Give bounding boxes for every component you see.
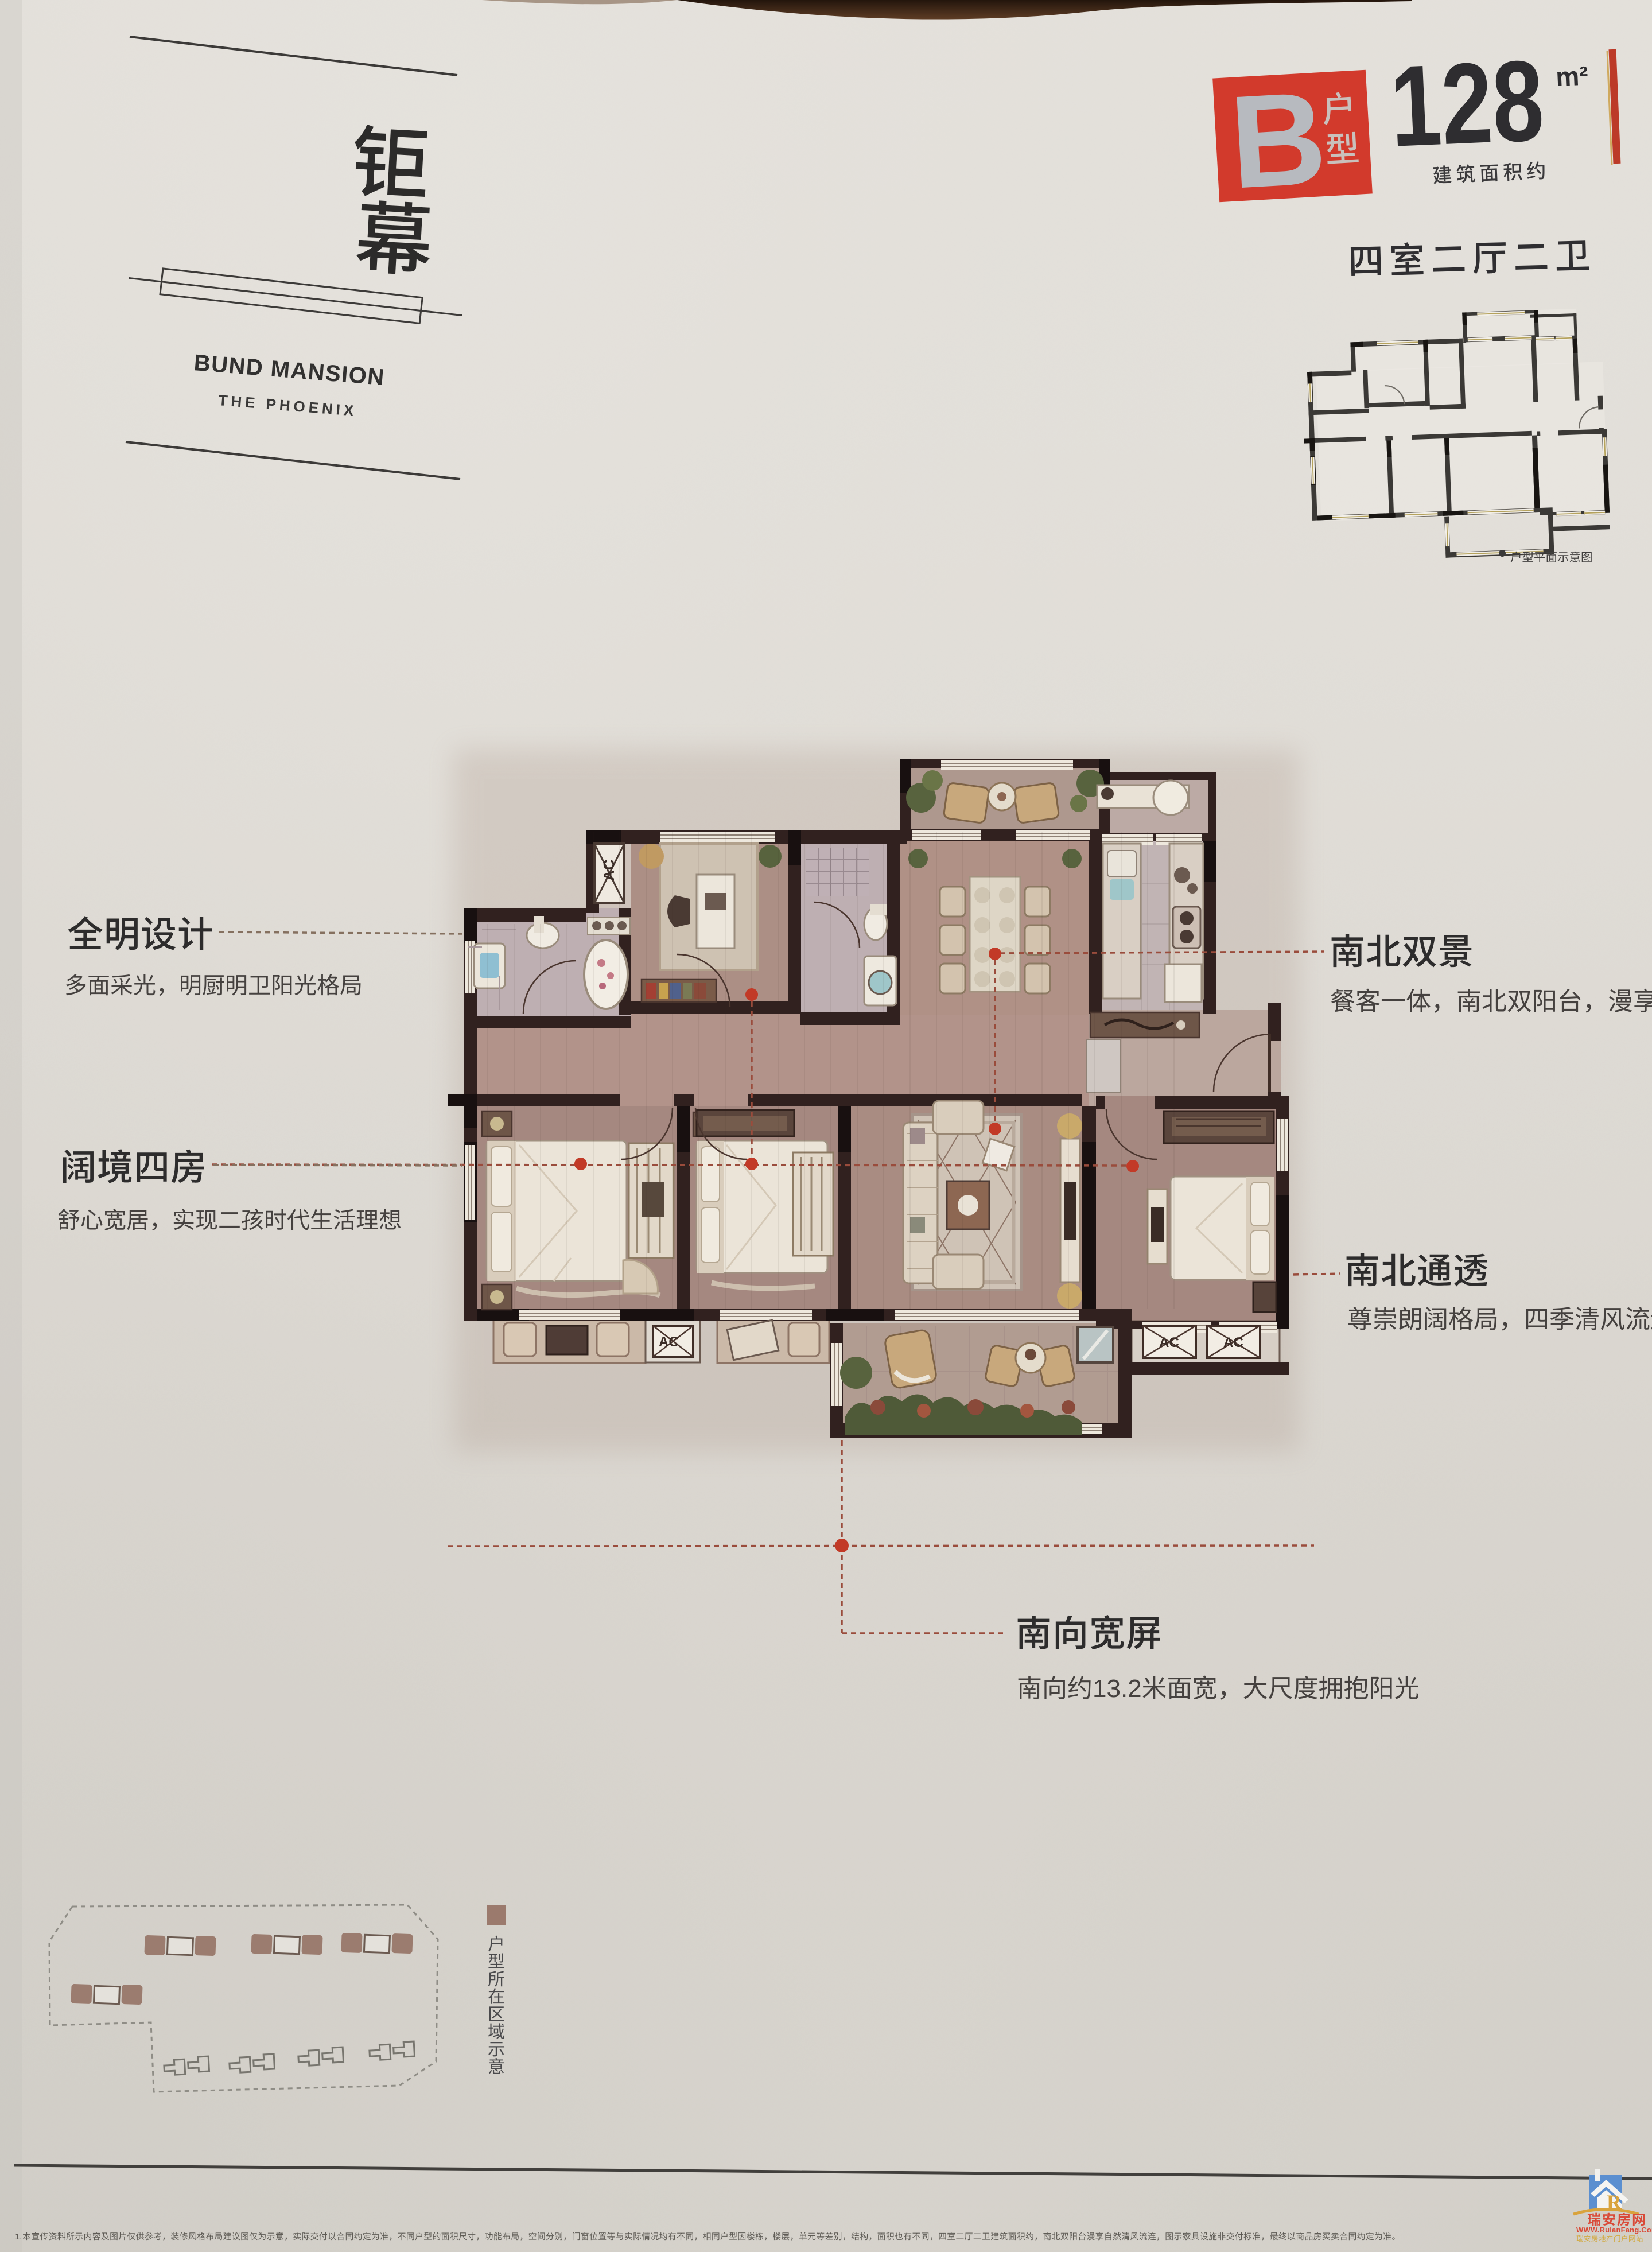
svg-text:AC: AC [659,1334,679,1350]
svg-text:WWW.RuianFang.Com: WWW.RuianFang.Com [1576,2226,1652,2234]
svg-text:13.2: 13.2 [1093,1675,1142,1703]
svg-text:128: 128 [1387,37,1546,172]
svg-text:AC: AC [600,859,617,881]
svg-text:1.: 1. [15,2232,22,2242]
svg-text:AC: AC [1223,1335,1243,1350]
svg-text:AC: AC [1159,1335,1179,1350]
svg-text:m²: m² [1555,61,1588,92]
svg-text:B: B [1226,64,1330,216]
